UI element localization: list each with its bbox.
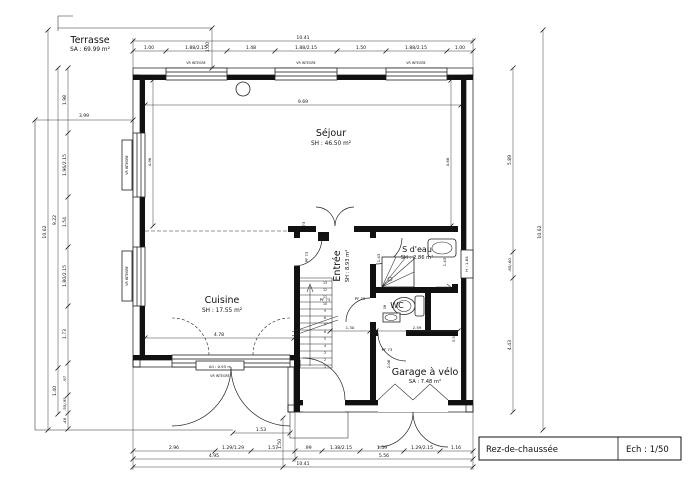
- title-block: Rez-de-chaussée Ech : 1/50: [479, 437, 681, 460]
- pf73-label: PF 73: [382, 347, 393, 352]
- dim-label: 1.43: [442, 257, 447, 266]
- dim-label: .55/.95: [62, 397, 67, 411]
- vr-integre-label: VR INTEGRE: [210, 374, 229, 378]
- garage-door-opening: [378, 400, 448, 412]
- dim-label: 3.51: [451, 333, 456, 342]
- dim-label: 2.06: [386, 359, 391, 368]
- dim-label: 1.80/2.15: [62, 265, 68, 287]
- dim-label: 1.29/2.15: [411, 445, 433, 451]
- pf73-label: PF 73: [304, 251, 309, 262]
- dim-label: 10.41: [296, 461, 309, 467]
- dimension-labels-bottom: 2.96 1.29/1.29 1.57 .99 1.38/2.15 1.59 1…: [169, 427, 461, 467]
- floor-plan-canvas: Terrasse SA : 69.99 m²: [0, 0, 690, 488]
- stair-number: 4: [324, 344, 326, 348]
- dim-label: 1.30: [346, 325, 355, 330]
- dim-label: 1.48: [246, 45, 256, 51]
- room-labels: Séjour SH : 46.50 m² Cuisine SH : 17.55 …: [202, 128, 459, 385]
- dim-label: 1.43: [376, 253, 381, 262]
- dim-label: 1.59: [377, 445, 387, 451]
- window-top-3: [386, 68, 447, 80]
- room-area-terrasse: SA : 69.99 m²: [70, 46, 110, 53]
- entry-porch: [290, 412, 348, 438]
- dim-label: .99: [304, 445, 311, 451]
- stair-number: 7: [324, 323, 326, 327]
- dim-label: 4.78: [214, 332, 224, 338]
- stair-number: 6: [324, 330, 326, 334]
- dim-label: 1.00: [144, 45, 154, 51]
- room-label-sdeau: S d'eau: [402, 245, 432, 254]
- dimension-labels-left: 10.62 9.22 1.40 1.98 1.96/2.15 1.54 1.80…: [42, 95, 89, 424]
- dim-label: 1.54: [62, 217, 68, 227]
- title-block-scale: Ech : 1/50: [626, 445, 669, 455]
- dim-label: 4.96: [147, 157, 152, 166]
- floor-plan-sheet: Terrasse SA : 69.99 m²: [0, 0, 690, 488]
- dim-label: 9.22: [52, 215, 58, 225]
- dim-label: .97: [62, 375, 67, 382]
- room-label-cuisine: Cuisine: [205, 295, 240, 306]
- hand-basin: [383, 313, 400, 322]
- stair-number: 13: [323, 281, 327, 285]
- room-label-garage: Garage à vélo: [392, 367, 459, 378]
- vr-integre-label: VR INTEGRE: [296, 61, 315, 65]
- window-height-label: H : 1.64: [464, 256, 469, 272]
- window-top-1: [166, 68, 227, 80]
- duct-block: [318, 232, 329, 241]
- dim-label: 1.38/2.15: [330, 445, 352, 451]
- dim-label: 2.96: [169, 445, 179, 451]
- vr-integre-label: VR INTEGRE: [125, 155, 129, 174]
- dim-label: 1.57: [268, 445, 278, 451]
- stair-number: 12: [323, 288, 327, 292]
- dim-label: 1.98: [62, 95, 68, 105]
- dim-label: 1.96/2.15: [62, 154, 68, 176]
- room-area-sejour: SH : 46.50 m²: [311, 140, 351, 147]
- pf73-label: PF 73: [320, 297, 331, 302]
- dim-label: 1.50: [356, 45, 366, 51]
- stair-number: 1: [324, 365, 326, 369]
- dim-label: 1.16: [451, 445, 461, 451]
- entry-door-opening: [303, 400, 345, 412]
- stair-number: 2: [324, 358, 326, 362]
- dim-label: 1.88/2.15: [405, 45, 427, 51]
- room-label-entree: Entrée: [332, 250, 343, 281]
- dim-label: 9.69: [298, 99, 308, 105]
- dim-label: 1.29/1.29: [222, 445, 244, 451]
- dim-label: 1.88/2.15: [185, 45, 207, 51]
- dim-label: 1.88/2.15: [295, 45, 317, 51]
- room-label-wc-sh: SH: [383, 304, 387, 309]
- title-block-name: Rez-de-chaussée: [486, 444, 558, 455]
- vr-integre-label: VR INTEGRE: [406, 61, 425, 65]
- room-area-entree: SH : 8.93 m²: [345, 250, 351, 283]
- dim-label: 2.59: [413, 325, 422, 330]
- dim-label: 10.62: [537, 225, 543, 238]
- dim-label: 10.41: [296, 35, 309, 41]
- dim-label: .65/.60: [507, 258, 512, 272]
- dim-label: 1.50: [277, 439, 283, 449]
- stair-number: 8: [324, 316, 326, 320]
- fixtures: [236, 82, 458, 322]
- room-area-cuisine: SH : 17.55 m²: [202, 307, 242, 314]
- dim-label: 1.00: [455, 45, 465, 51]
- shower: [382, 257, 414, 287]
- dim-label: 3.99: [79, 113, 89, 119]
- door-sill-label: All : 0.95 m: [209, 364, 232, 369]
- dim-label: 10.62: [42, 225, 48, 238]
- dimension-labels-interior: 9.69 4.96 4.66 4.78 1.30 2.59 1.43 1.43 …: [147, 99, 456, 368]
- dim-label: .48: [62, 417, 67, 424]
- stair-number: 5: [324, 337, 326, 341]
- room-label-terrasse: Terrasse: [69, 35, 109, 46]
- stove-flue: [236, 82, 250, 96]
- dim-label: 5.89: [507, 155, 513, 165]
- dim-label: 1.73: [62, 329, 68, 339]
- pf73-label: PF 73: [301, 221, 306, 232]
- dim-label: 1.53: [256, 427, 266, 433]
- dimension-labels-top: 10.41 1.00 1.88/2.15 1.48 1.88/2.15 1.50…: [144, 35, 465, 52]
- window-top-2: [275, 68, 337, 80]
- room-label-wc: WC: [390, 301, 404, 310]
- vr-integre-label: VR INTEGRE: [125, 266, 129, 285]
- dim-label: 1.40: [52, 386, 58, 396]
- stair-number: 3: [324, 351, 326, 355]
- room-area-sdeau: SH : 2.86 m²: [401, 255, 434, 261]
- room-label-sejour: Séjour: [316, 128, 346, 139]
- dim-label: 4.43: [507, 340, 513, 350]
- dim-label: 4.66: [445, 157, 450, 166]
- pf73-label: PF 73: [355, 296, 366, 301]
- dim-label: 4.95: [209, 453, 219, 459]
- dim-label: 5.56: [379, 453, 389, 459]
- stair-number: 10: [323, 302, 327, 306]
- vr-integre-label: VR INTEGRE: [186, 61, 205, 65]
- stair-number: 9: [324, 309, 326, 313]
- dim-label: 1.00: [205, 42, 211, 52]
- room-area-garage: SA : 7.48 m²: [409, 379, 441, 385]
